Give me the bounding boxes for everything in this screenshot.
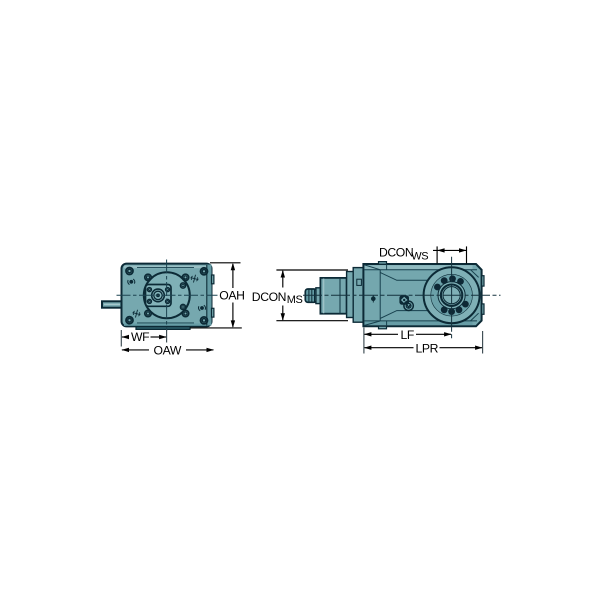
- svg-text:LF: LF: [401, 328, 414, 342]
- svg-text:OAH: OAH: [219, 289, 244, 303]
- svg-text:LPR: LPR: [416, 341, 439, 355]
- svg-text:WF: WF: [131, 330, 149, 344]
- svg-text:WS: WS: [411, 250, 428, 262]
- svg-text:DCON: DCON: [379, 245, 413, 259]
- svg-text:DCON: DCON: [252, 290, 286, 304]
- svg-text:MS: MS: [287, 294, 303, 306]
- svg-text:OAW: OAW: [154, 343, 182, 357]
